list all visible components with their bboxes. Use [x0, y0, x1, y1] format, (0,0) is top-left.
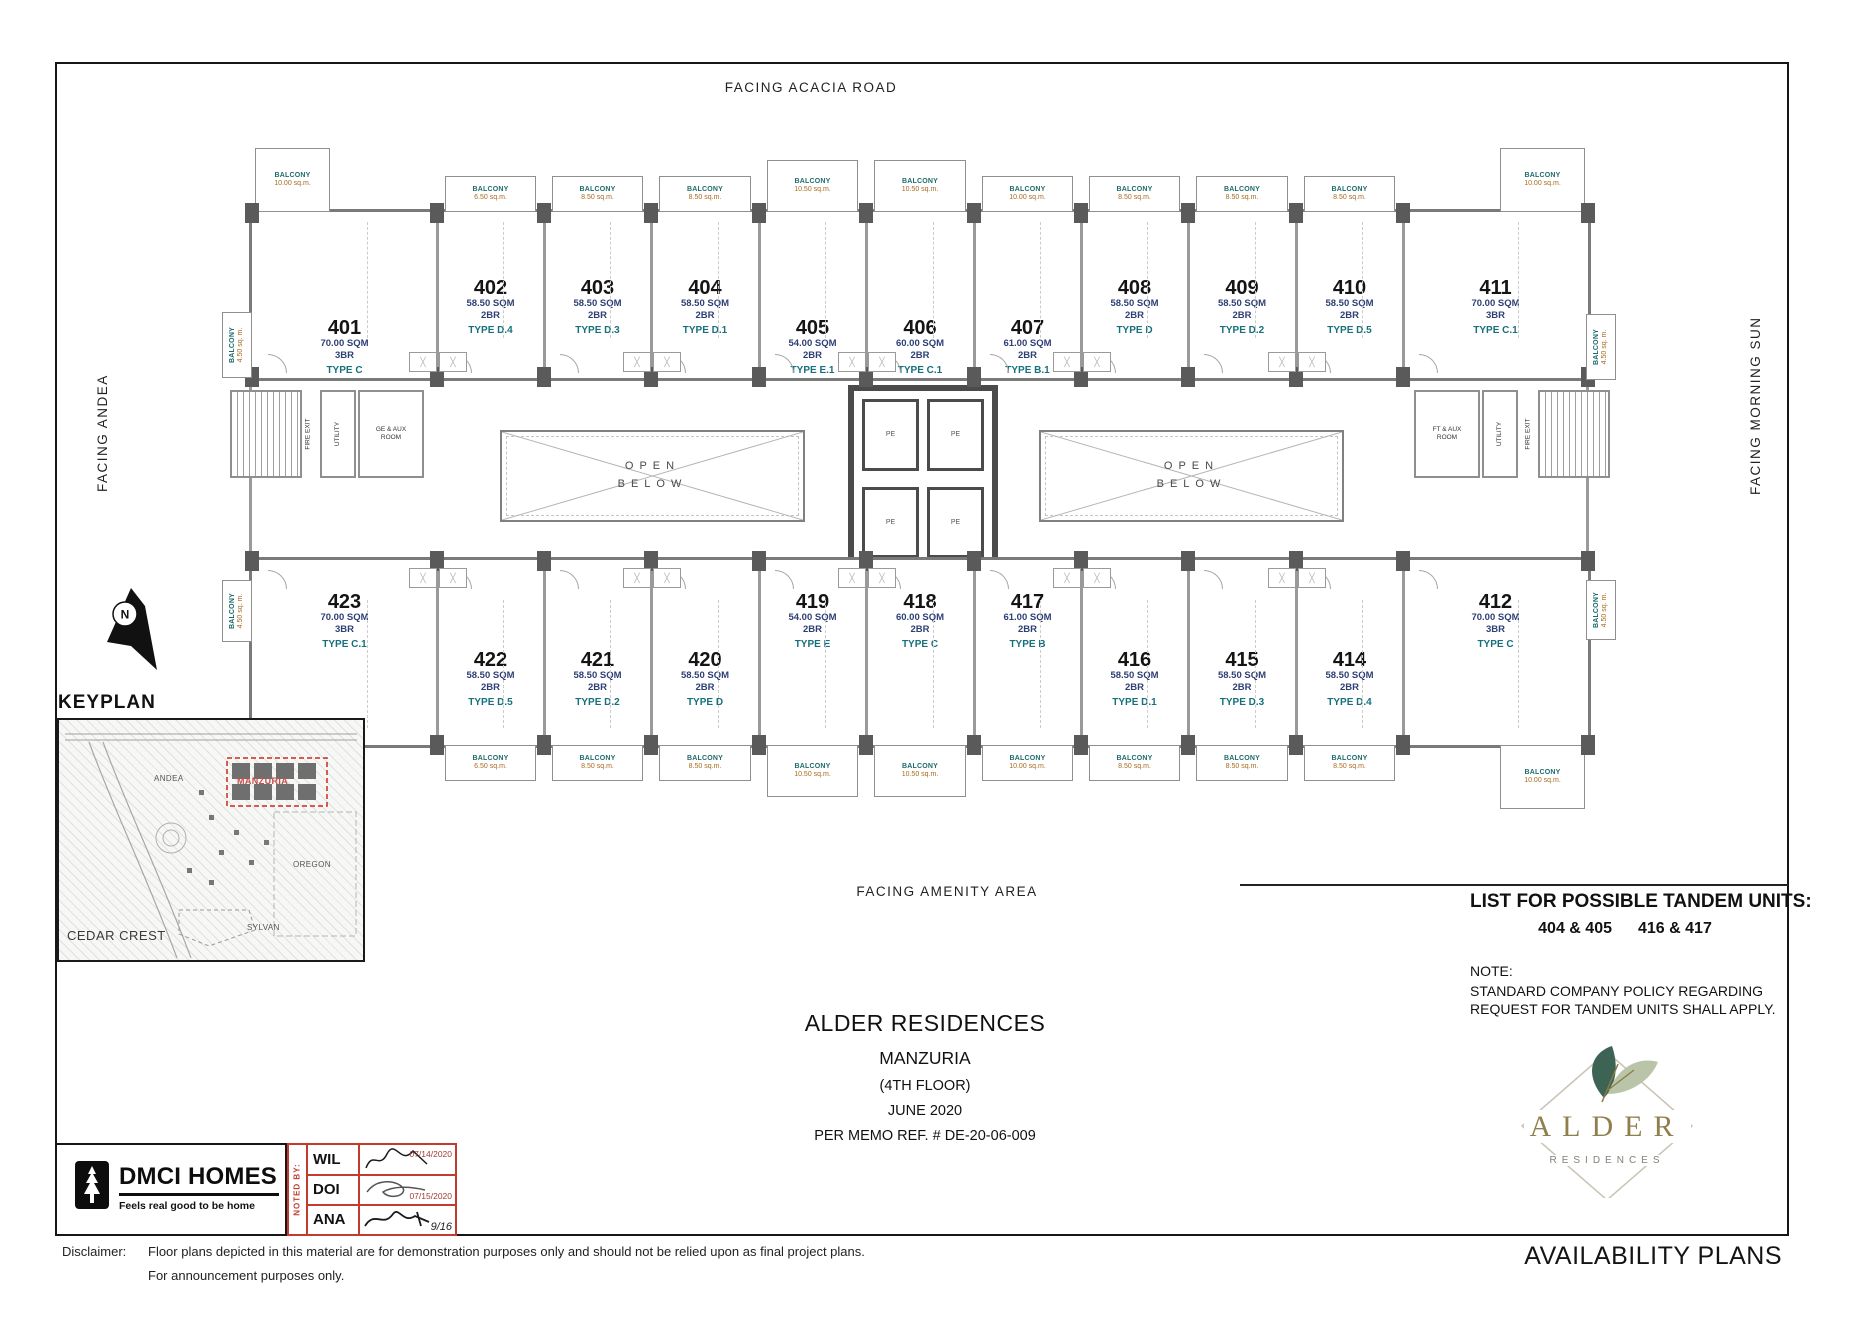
keyplan-title: KEYPLAN: [58, 692, 156, 714]
project-title: ALDER RESIDENCES: [725, 1010, 1125, 1037]
party-wall: [865, 562, 868, 743]
balcony-word: BALCONY: [1593, 592, 1601, 628]
unit-area: 70.00 SQM: [1409, 298, 1582, 310]
side-balcony: BALCONY4.50 sq. m.: [222, 580, 252, 642]
noted-by-name: DOI: [313, 1181, 340, 1198]
tandem-note: NOTE: STANDARD COMPANY POLICY REGARDING …: [1470, 962, 1776, 1018]
utility-text: UTILITY: [1496, 422, 1504, 446]
balcony-area: 8.50 sq.m.: [1333, 194, 1366, 202]
unit-number: 402: [443, 278, 538, 298]
balcony-word: BALCONY: [1116, 755, 1152, 763]
elevator-label: PE: [886, 519, 895, 526]
interior-partition: [610, 600, 611, 728]
balcony-412: BALCONY10.00 sq.m.: [1500, 745, 1585, 809]
unit-bedrooms: 2BR: [1087, 310, 1182, 322]
balcony-word: BALCONY: [1524, 172, 1560, 180]
ge-aux-text: GE & AUX ROOM: [369, 426, 413, 442]
unit-number: 414: [1302, 650, 1397, 670]
ge-aux-room: GE & AUX ROOM: [358, 390, 424, 478]
unit-area: 58.50 SQM: [443, 670, 538, 682]
balcony-416: BALCONY8.50 sq.m.: [1089, 745, 1180, 781]
balcony-area: 10.00 sq.m.: [274, 180, 311, 188]
party-wall: [1295, 562, 1298, 743]
table-line: [306, 1174, 455, 1176]
unit-bedrooms: 2BR: [872, 624, 968, 636]
noted-by-name: WIL: [313, 1151, 341, 1168]
unit-area: 60.00 SQM: [872, 612, 968, 624]
interior-partition: [367, 600, 368, 728]
disclaimer-line-1: Floor plans depicted in this material ar…: [148, 1244, 1248, 1259]
unit-number: 411: [1409, 278, 1582, 298]
utility-room-left: UTILITY: [320, 390, 356, 478]
shower-box: [1053, 352, 1081, 372]
structural-column: [967, 203, 981, 223]
unit-bedrooms: 2BR: [765, 624, 860, 636]
interior-partition: [1362, 600, 1363, 728]
party-wall: [436, 562, 439, 743]
interior-partition: [825, 600, 826, 728]
party-wall: [973, 562, 976, 743]
unit-type: TYPE C.1: [1409, 325, 1582, 337]
unit-number: 401: [258, 318, 431, 338]
disclaimer-line-2: For announcement purposes only.: [148, 1268, 1248, 1283]
unit-type: TYPE B: [980, 639, 1075, 651]
party-wall: [543, 562, 546, 743]
structural-column: [967, 735, 981, 755]
shower-box: [838, 352, 866, 372]
structural-column: [1581, 551, 1595, 571]
signature: [363, 1208, 433, 1232]
note-label: NOTE:: [1470, 962, 1776, 980]
balcony-area: 8.50 sq.m.: [1333, 763, 1366, 771]
north-arrow-icon: N: [95, 582, 173, 674]
open-below-left: OPEN BELOW: [500, 430, 805, 522]
fire-exit-text: FIRE EXIT: [1525, 418, 1533, 449]
title-block: ALDER RESIDENCES MANZURIA (4TH FLOOR) JU…: [725, 1010, 1125, 1144]
unit-area: 58.50 SQM: [1194, 298, 1290, 310]
balcony-417: BALCONY10.00 sq.m.: [982, 745, 1073, 781]
fire-stair-left: [230, 390, 302, 478]
party-wall: [1402, 562, 1405, 743]
unit-number: 421: [550, 650, 645, 670]
section-divider-line: [1240, 884, 1789, 886]
structural-column: [1074, 203, 1088, 223]
alder-sub-wordmark: RESIDENCES: [1545, 1155, 1668, 1166]
unit-number: 406: [872, 318, 968, 338]
balcony-area: 4.50 sq. m.: [1601, 329, 1609, 365]
floor-title: (4TH FLOOR): [725, 1078, 1125, 1094]
wet-wall-fixtures: [1053, 568, 1111, 588]
balcony-word: BALCONY: [472, 755, 508, 763]
balcony-word: BALCONY: [687, 186, 723, 194]
side-balcony: BALCONY4.50 sq. m.: [1586, 580, 1616, 640]
balcony-409: BALCONY8.50 sq.m.: [1196, 176, 1288, 212]
shower-box: [409, 568, 437, 588]
balcony-418: BALCONY10.50 sq.m.: [874, 745, 966, 797]
north-letter: N: [121, 608, 130, 622]
balcony-area: 8.50 sq.m.: [1226, 194, 1259, 202]
unit-bedrooms: 2BR: [1087, 682, 1182, 694]
alder-residences-logo: ALDER RESIDENCES: [1492, 1038, 1722, 1198]
interior-partition: [610, 222, 611, 338]
shower-box: [439, 352, 467, 372]
dmci-homes-block: DMCI HOMES Feels real good to be home: [55, 1143, 287, 1236]
party-wall: [543, 214, 546, 376]
unit-402: 40258.50 SQM2BRTYPE D.4: [443, 278, 538, 337]
unit-419: 41954.00 SQM2BRTYPE E: [765, 592, 860, 651]
side-balcony-label: BALCONY4.50 sq. m.: [229, 327, 245, 363]
dmci-tagline: Feels real good to be home: [119, 1200, 279, 1212]
balcony-402: BALCONY6.50 sq.m.: [445, 176, 536, 212]
unit-bedrooms: 2BR: [1194, 310, 1290, 322]
balcony-408: BALCONY8.50 sq.m.: [1089, 176, 1180, 212]
table-line: [306, 1145, 308, 1234]
elevator-cab: PE: [927, 487, 984, 559]
unit-type: TYPE D.5: [443, 697, 538, 709]
balcony-403: BALCONY8.50 sq.m.: [552, 176, 643, 212]
unit-bedrooms: 3BR: [1409, 310, 1582, 322]
balcony-404: BALCONY8.50 sq.m.: [659, 176, 751, 212]
balcony-area: 10.00 sq.m.: [1009, 763, 1046, 771]
balcony-area: 6.50 sq.m.: [474, 763, 507, 771]
interior-partition: [1147, 600, 1148, 728]
unit-423: 42370.00 SQM3BRTYPE C.1: [258, 592, 431, 651]
unit-number: 412: [1409, 592, 1582, 612]
side-balcony-label: BALCONY4.50 sq. m.: [1593, 592, 1609, 628]
noted-by-date: 07/15/2020: [409, 1191, 452, 1201]
unit-bedrooms: 2BR: [657, 682, 753, 694]
balcony-word: BALCONY: [902, 763, 938, 771]
shower-box: [439, 568, 467, 588]
unit-area: 58.50 SQM: [657, 670, 753, 682]
structural-column: [752, 367, 766, 387]
unit-type: TYPE D.3: [1194, 697, 1290, 709]
party-wall: [1187, 562, 1190, 743]
party-wall: [758, 562, 761, 743]
balcony-word: BALCONY: [579, 186, 615, 194]
unit-area: 58.50 SQM: [657, 298, 753, 310]
unit-area: 70.00 SQM: [1409, 612, 1582, 624]
noted-by-date: 9/16: [431, 1221, 452, 1233]
structural-column: [1181, 367, 1195, 387]
unit-area: 58.50 SQM: [550, 298, 645, 310]
unit-number: 420: [657, 650, 753, 670]
side-balcony: BALCONY4.50 sq. m.: [1586, 314, 1616, 380]
elevator-label: PE: [951, 519, 960, 526]
unit-bedrooms: 3BR: [1409, 624, 1582, 636]
balcony-411: BALCONY10.00 sq.m.: [1500, 148, 1585, 212]
tandem-pair-1: 404 & 405: [1538, 920, 1612, 937]
structural-column: [245, 203, 259, 223]
unit-420: 42058.50 SQM2BRTYPE D: [657, 650, 753, 709]
unit-number: 409: [1194, 278, 1290, 298]
balcony-word: BALCONY: [1224, 755, 1260, 763]
unit-area: 61.00 SQM: [980, 338, 1075, 350]
structural-column: [1396, 203, 1410, 223]
wet-wall-fixtures: [1268, 568, 1326, 588]
shower-box: [1053, 568, 1081, 588]
structural-column: [1074, 735, 1088, 755]
unit-type: TYPE C: [1409, 639, 1582, 651]
party-wall: [1402, 214, 1405, 376]
structural-column: [1181, 735, 1195, 755]
wet-wall-fixtures: [1268, 352, 1326, 372]
balcony-word: BALCONY: [902, 178, 938, 186]
keyplan-map: ANDEA MANZURIA OREGON SYLVAN CEDAR CREST: [57, 718, 365, 962]
wet-wall-fixtures: [838, 352, 896, 372]
ft-aux-text: FT & AUX ROOM: [1425, 426, 1469, 442]
utility-room-right: UTILITY: [1482, 390, 1518, 478]
balcony-area: 8.50 sq.m.: [1226, 763, 1259, 771]
interior-partition: [1362, 222, 1363, 338]
unit-number: 410: [1302, 278, 1397, 298]
unit-403: 40358.50 SQM2BRTYPE D.3: [550, 278, 645, 337]
unit-area: 58.50 SQM: [1194, 670, 1290, 682]
balcony-area: 10.00 sq.m.: [1524, 180, 1561, 188]
interior-partition: [1040, 600, 1041, 728]
interior-partition: [1040, 222, 1041, 338]
unit-bedrooms: 2BR: [550, 310, 645, 322]
unit-421: 42158.50 SQM2BRTYPE D.2: [550, 650, 645, 709]
unit-area: 54.00 SQM: [765, 338, 860, 350]
shower-box: [1298, 568, 1326, 588]
interior-partition: [1255, 600, 1256, 728]
balcony-407: BALCONY10.00 sq.m.: [982, 176, 1073, 212]
unit-414: 41458.50 SQM2BRTYPE D.4: [1302, 650, 1397, 709]
shower-box: [1083, 352, 1111, 372]
balcony-word: BALCONY: [794, 763, 830, 771]
unit-type: TYPE D.1: [1087, 697, 1182, 709]
unit-area: 70.00 SQM: [258, 612, 431, 624]
unit-number: 404: [657, 278, 753, 298]
disclaimer-label: Disclaimer:: [62, 1244, 126, 1259]
structural-column: [752, 551, 766, 571]
wet-wall-fixtures: [838, 568, 896, 588]
structural-column: [752, 203, 766, 223]
interior-partition: [503, 222, 504, 338]
elevator-cab: PE: [862, 399, 919, 471]
keyplan-oregon-label: OREGON: [293, 860, 331, 869]
tandem-pairs: 404 & 405416 & 417: [1470, 920, 1780, 938]
unit-bedrooms: 2BR: [443, 682, 538, 694]
unit-area: 58.50 SQM: [1302, 670, 1397, 682]
unit-number: 422: [443, 650, 538, 670]
structural-column: [967, 551, 981, 571]
unit-number: 418: [872, 592, 968, 612]
shower-box: [623, 352, 651, 372]
balcony-word: BALCONY: [1331, 755, 1367, 763]
wet-wall-fixtures: [623, 352, 681, 372]
structural-column: [537, 735, 551, 755]
unit-number: 403: [550, 278, 645, 298]
party-wall: [973, 214, 976, 376]
balcony-word: BALCONY: [1224, 186, 1260, 194]
balcony-word: BALCONY: [1524, 769, 1560, 777]
balcony-410: BALCONY8.50 sq.m.: [1304, 176, 1395, 212]
noted-by-name: ANA: [313, 1211, 346, 1228]
unit-number: 416: [1087, 650, 1182, 670]
structural-column: [752, 735, 766, 755]
unit-408: 40858.50 SQM2BRTYPE D: [1087, 278, 1182, 337]
unit-area: 60.00 SQM: [872, 338, 968, 350]
wet-wall-fixtures: [1053, 352, 1111, 372]
fire-exit-label-left: FIRE EXIT: [300, 390, 318, 478]
balcony-area: 8.50 sq.m.: [1118, 194, 1151, 202]
balcony-area: 4.50 sq. m.: [1601, 592, 1609, 628]
unit-number: 405: [765, 318, 860, 338]
balcony-word: BALCONY: [579, 755, 615, 763]
balcony-area: 6.50 sq.m.: [474, 194, 507, 202]
balcony-word: BALCONY: [794, 178, 830, 186]
elevator-core: PE PE PE PE: [848, 385, 998, 572]
unit-number: 408: [1087, 278, 1182, 298]
unit-415: 41558.50 SQM2BRTYPE D.3: [1194, 650, 1290, 709]
balcony-area: 10.00 sq.m.: [1524, 777, 1561, 785]
unit-bedrooms: 2BR: [657, 310, 753, 322]
unit-bedrooms: 2BR: [1302, 310, 1397, 322]
unit-number: 415: [1194, 650, 1290, 670]
balcony-area: 4.50 sq. m.: [237, 593, 245, 629]
unit-area: 58.50 SQM: [550, 670, 645, 682]
unit-bedrooms: 2BR: [1194, 682, 1290, 694]
balcony-area: 4.50 sq. m.: [237, 327, 245, 363]
dmci-wordmark: DMCI HOMES: [119, 1163, 279, 1191]
interior-partition: [1518, 600, 1519, 728]
dmci-underline: [119, 1193, 279, 1196]
unit-type: TYPE D.1: [657, 325, 753, 337]
unit-type: TYPE D.5: [1302, 325, 1397, 337]
building-title: MANZURIA: [725, 1048, 1125, 1069]
elevator-label: PE: [951, 431, 960, 438]
structural-column: [859, 735, 873, 755]
balcony-422: BALCONY6.50 sq.m.: [445, 745, 536, 781]
balcony-word: BALCONY: [1116, 186, 1152, 194]
unit-type: TYPE D.2: [1194, 325, 1290, 337]
unit-bedrooms: 2BR: [443, 310, 538, 322]
structural-column: [430, 203, 444, 223]
table-line: [358, 1145, 360, 1234]
balcony-word: BALCONY: [1009, 755, 1045, 763]
unit-type: TYPE D: [657, 697, 753, 709]
structural-column: [245, 551, 259, 571]
tandem-pair-2: 416 & 417: [1638, 920, 1712, 937]
unit-area: 54.00 SQM: [765, 612, 860, 624]
unit-area: 61.00 SQM: [980, 612, 1075, 624]
structural-column: [1396, 735, 1410, 755]
note-line-1: STANDARD COMPANY POLICY REGARDING: [1470, 982, 1776, 1000]
unit-type: TYPE D.3: [550, 325, 645, 337]
structural-column: [537, 367, 551, 387]
structural-column: [1581, 735, 1595, 755]
keyplan-cedar-crest-label: CEDAR CREST: [67, 928, 166, 943]
dmci-logo-icon: [75, 1161, 109, 1209]
balcony-word: BALCONY: [229, 593, 237, 629]
unit-409: 40958.50 SQM2BRTYPE D.2: [1194, 278, 1290, 337]
elevator-label: PE: [886, 431, 895, 438]
unit-type: TYPE D.2: [550, 697, 645, 709]
unit-type: TYPE D.4: [443, 325, 538, 337]
interior-partition: [1147, 222, 1148, 338]
balcony-word: BALCONY: [1593, 329, 1601, 365]
ft-aux-room: FT & AUX ROOM: [1414, 390, 1480, 478]
balcony-word: BALCONY: [229, 327, 237, 363]
memo-ref: PER MEMO REF. # DE-20-06-009: [725, 1128, 1125, 1144]
noted-by-table: NOTED BY: WIL07/14/2020DOI07/15/2020ANA9…: [287, 1143, 457, 1236]
interior-partition: [1518, 222, 1519, 338]
balcony-401: BALCONY10.00 sq.m.: [255, 148, 330, 212]
open-below-right: OPEN BELOW: [1039, 430, 1344, 522]
balcony-area: 8.50 sq.m.: [689, 194, 722, 202]
balcony-area: 10.50 sq.m.: [794, 771, 831, 779]
balcony-area: 8.50 sq.m.: [689, 763, 722, 771]
interior-partition: [718, 222, 719, 338]
unit-type: TYPE D: [1087, 325, 1182, 337]
party-wall: [758, 214, 761, 376]
interior-partition: [367, 222, 368, 338]
structural-column: [1396, 367, 1410, 387]
unit-area: 58.50 SQM: [1087, 670, 1182, 682]
structural-column: [1289, 203, 1303, 223]
balcony-area: 8.50 sq.m.: [581, 194, 614, 202]
structural-column: [644, 203, 658, 223]
unit-number: 417: [980, 592, 1075, 612]
utility-text: UTILITY: [334, 422, 342, 446]
unit-411: 41170.00 SQM3BRTYPE C.1: [1409, 278, 1582, 337]
structural-column: [1181, 551, 1195, 571]
unit-410: 41058.50 SQM2BRTYPE D.5: [1302, 278, 1397, 337]
balcony-414: BALCONY8.50 sq.m.: [1304, 745, 1395, 781]
shower-box: [1268, 352, 1296, 372]
keyplan-andea-label: ANDEA: [154, 774, 184, 783]
balcony-415: BALCONY8.50 sq.m.: [1196, 745, 1288, 781]
structural-column: [1396, 551, 1410, 571]
noted-by-date: 07/14/2020: [409, 1149, 452, 1159]
shower-box: [1083, 568, 1111, 588]
unit-418: 41860.00 SQM2BRTYPE C: [872, 592, 968, 651]
party-wall: [1080, 562, 1083, 743]
unit-type: TYPE E: [765, 639, 860, 651]
keyplan-sylvan-label: SYLVAN: [247, 923, 280, 932]
balcony-word: BALCONY: [1331, 186, 1367, 194]
unit-bedrooms: 2BR: [1302, 682, 1397, 694]
shower-box: [653, 352, 681, 372]
structural-column: [430, 735, 444, 755]
structural-column: [1289, 735, 1303, 755]
balcony-area: 10.00 sq.m.: [1009, 194, 1046, 202]
party-wall: [1187, 214, 1190, 376]
unit-417: 41761.00 SQM2BRTYPE B: [980, 592, 1075, 651]
interior-partition: [933, 222, 934, 338]
unit-416: 41658.50 SQM2BRTYPE D.1: [1087, 650, 1182, 709]
open-below-text2: BELOW: [1157, 476, 1227, 494]
balcony-420: BALCONY8.50 sq.m.: [659, 745, 751, 781]
unit-type: TYPE D.4: [1302, 697, 1397, 709]
side-balcony: BALCONY4.50 sq. m.: [222, 312, 252, 378]
shower-box: [409, 352, 437, 372]
wet-wall-fixtures: [409, 352, 467, 372]
structural-column: [967, 367, 981, 387]
fire-exit-text: FIRE EXIT: [305, 418, 313, 449]
note-line-2: REQUEST FOR TANDEM UNITS SHALL APPLY.: [1470, 1000, 1776, 1018]
open-below-text1: OPEN: [1164, 458, 1219, 476]
interior-partition: [503, 600, 504, 728]
unit-area: 58.50 SQM: [1087, 298, 1182, 310]
unit-area: 58.50 SQM: [1302, 298, 1397, 310]
date-title: JUNE 2020: [725, 1103, 1125, 1119]
wet-wall-fixtures: [409, 568, 467, 588]
structural-column: [537, 551, 551, 571]
unit-bedrooms: 3BR: [258, 350, 431, 362]
